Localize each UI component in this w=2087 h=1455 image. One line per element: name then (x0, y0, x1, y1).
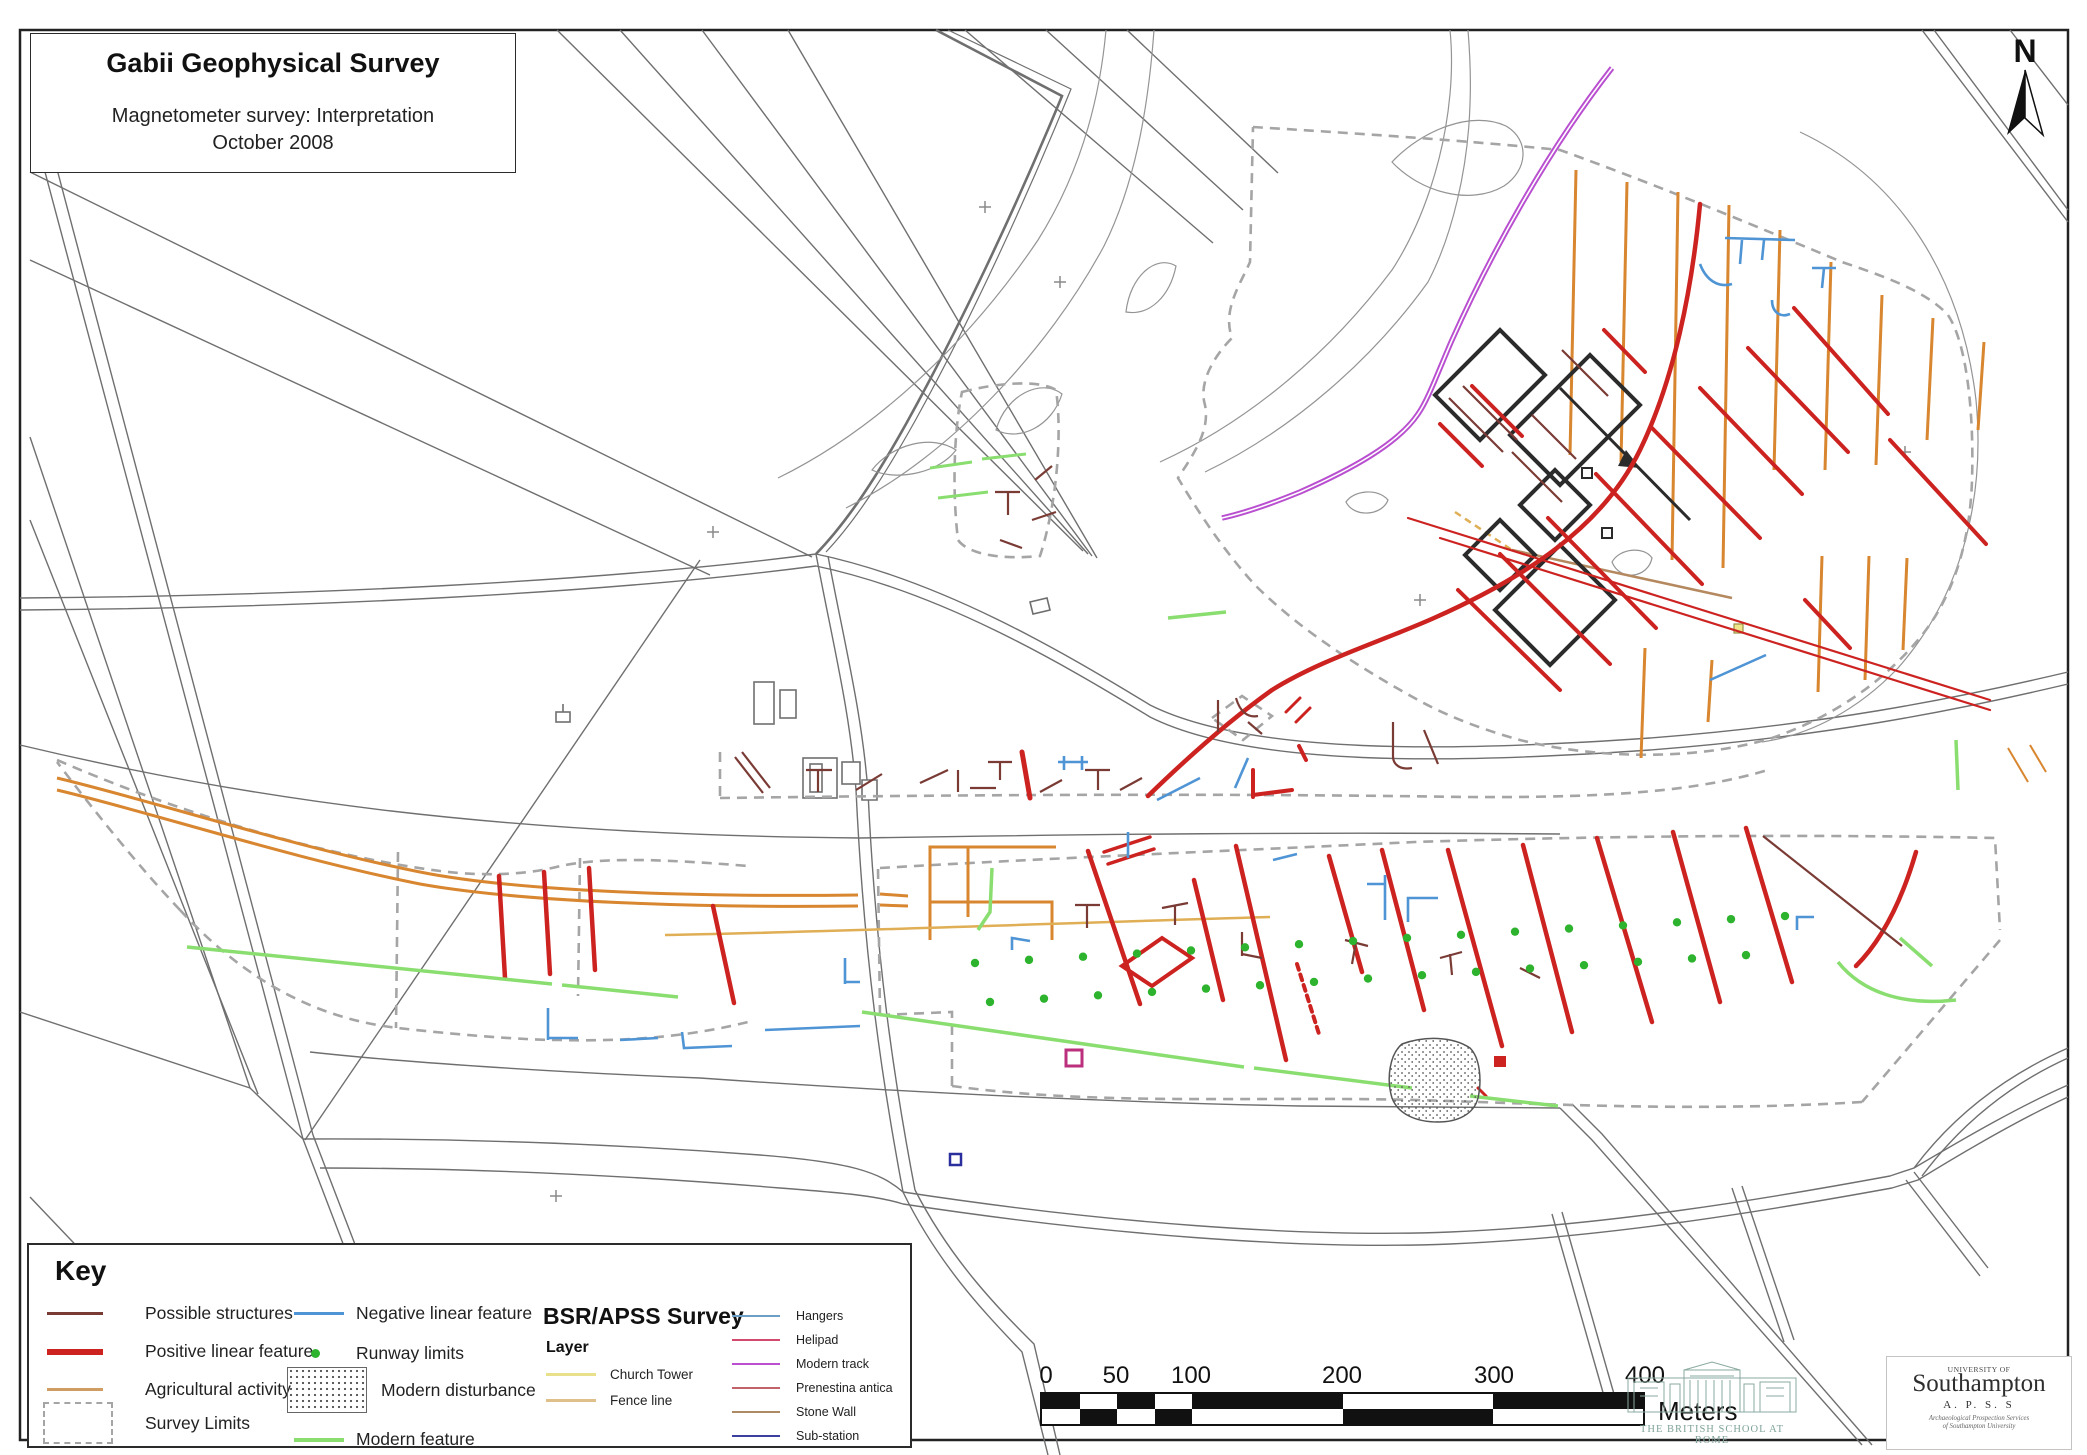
map-subtitle: Magnetometer survey: Interpretation (31, 105, 515, 128)
legend-label: Modern track (796, 1357, 869, 1371)
runway-limit-dot (1349, 937, 1357, 945)
modern-disturbance-patch (1389, 1038, 1480, 1122)
legend-label: Fence line (610, 1393, 672, 1408)
runway-limit-dot (1688, 954, 1696, 962)
runway-limit-dot (1727, 915, 1735, 923)
legend-label: Survey Limits (145, 1413, 250, 1434)
legend-item-possible-structures: Possible structures (47, 1303, 293, 1324)
gabii-survey-map-page: { "title_block": { "title": "Gabii Geoph… (0, 0, 2087, 1455)
apss-subtext: Archaeological Prospection Services of S… (1887, 1415, 2071, 1431)
hangers-swatch (732, 1315, 780, 1317)
runway-limit-dot (1364, 974, 1372, 982)
apss-subtext-line2: of Southampton University (1887, 1423, 2071, 1431)
legend-item-runway-limits: Runway limits (311, 1343, 464, 1364)
runway-limit-dot (1619, 921, 1627, 929)
helipad-swatch (732, 1339, 780, 1341)
scale-tick: 100 (1171, 1362, 1211, 1390)
legend-item-survey-limits: Survey Limits (43, 1402, 250, 1444)
bsr-logo-text: THE BRITISH SCHOOL AT ROME (1622, 1424, 1802, 1446)
legend-label: Negative linear feature (356, 1303, 532, 1324)
legend-label: Helipad (796, 1333, 838, 1347)
runway-limit-dot (1025, 956, 1033, 964)
runway-limit-dot (1079, 953, 1087, 961)
bsr-building-icon (1624, 1360, 1800, 1418)
legend-label: Stone Wall (796, 1405, 856, 1419)
runway-limit-dot (1040, 994, 1048, 1002)
scale-tick: 300 (1474, 1362, 1514, 1390)
runway-limit-dot (971, 959, 979, 967)
legend-label: Agricultural activity (145, 1379, 291, 1400)
runway-limit-dot (1094, 991, 1102, 999)
agricultural-swatch (47, 1388, 103, 1391)
legend-item-modern-feature: Modern feature (294, 1429, 475, 1450)
runway-limit-dot (1403, 934, 1411, 942)
bsr-layer-subheading: Layer (546, 1339, 589, 1357)
stone-wall-swatch (732, 1411, 780, 1413)
bsr-logo: THE BRITISH SCHOOL AT ROME (1622, 1360, 1802, 1444)
legend-item-stone-wall: Stone Wall (732, 1405, 856, 1419)
legend-item-modern-disturbance: Modern disturbance (287, 1367, 536, 1413)
modern-disturbance-swatch (287, 1367, 367, 1413)
legend-item-church-tower: Church Tower (546, 1367, 693, 1382)
legend-heading: Key (55, 1255, 106, 1287)
runway-limit-dot (1526, 964, 1534, 972)
map-frame (20, 30, 2068, 1440)
scale-tick: 50 (1103, 1362, 1130, 1390)
scale-tick: 0 (1039, 1362, 1052, 1390)
legend-label: Possible structures (145, 1303, 293, 1324)
apss-label: A. P. S. S (1887, 1399, 2071, 1411)
legend-item-negative-linear: Negative linear feature (294, 1303, 532, 1324)
runway-limit-dot (1742, 951, 1750, 959)
southampton-wordmark: Southampton (1887, 1374, 2071, 1394)
scale-tick: 200 (1322, 1362, 1362, 1390)
scale-bar-graphic (1040, 1392, 1645, 1426)
modern-track-swatch (732, 1363, 780, 1365)
runway-limit-dot (1256, 981, 1264, 989)
map-date: October 2008 (31, 132, 515, 155)
legend-item-fence-line: Fence line (546, 1393, 672, 1408)
bsr-survey-heading: BSR/APSS Survey (543, 1303, 744, 1330)
runway-limit-dot (1781, 912, 1789, 920)
legend-item-helipad: Helipad (732, 1333, 838, 1347)
survey-limits-swatch (43, 1402, 113, 1444)
legend-item-prenestina-antica: Prenestina antica (732, 1381, 893, 1395)
fence-line-swatch (546, 1399, 596, 1402)
runway-limit-dot (1202, 984, 1210, 992)
modern-feature-swatch (294, 1438, 344, 1442)
runway-limit-dot (1634, 958, 1642, 966)
runway-limit-dot (1187, 946, 1195, 954)
map-title: Gabii Geophysical Survey (31, 48, 515, 79)
legend-item-positive-linear: Positive linear feature (47, 1341, 313, 1362)
legend-label: Positive linear feature (145, 1341, 313, 1362)
positive-feature-swatch (47, 1349, 103, 1355)
survey-map: N (0, 0, 2087, 1455)
runway-limit-dot (1511, 927, 1519, 935)
runway-limit-dot (1418, 971, 1426, 979)
runway-limit-dot (1295, 940, 1303, 948)
runway-limits-swatch (311, 1349, 320, 1358)
runway-limit-dot (1310, 978, 1318, 986)
sub-station-swatch (732, 1435, 780, 1437)
legend-item-modern-track: Modern track (732, 1357, 869, 1371)
legend-label: Church Tower (610, 1367, 693, 1382)
church-tower-swatch (546, 1373, 596, 1376)
legend-item-hangers: Hangers (732, 1309, 843, 1323)
runway-limit-dot (1472, 968, 1480, 976)
runway-limit-dot (1241, 943, 1249, 951)
legend-label: Runway limits (356, 1343, 464, 1364)
negative-feature-swatch (294, 1312, 344, 1315)
legend-label: Hangers (796, 1309, 843, 1323)
runway-limit-dot (1673, 918, 1681, 926)
legend-item-agricultural: Agricultural activity (47, 1379, 291, 1400)
runway-limit-dot (1457, 931, 1465, 939)
sub-station-square (950, 1154, 961, 1165)
legend-label: Modern disturbance (381, 1380, 536, 1401)
legend-label: Prenestina antica (796, 1381, 893, 1395)
legend-item-sub-station: Sub-station (732, 1429, 859, 1443)
north-label: N (2013, 33, 2036, 69)
legend-label: Sub-station (796, 1429, 859, 1443)
southampton-logo: UNIVERSITY OF Southampton A. P. S. S Arc… (1886, 1356, 2072, 1450)
runway-limit-dot (1148, 988, 1156, 996)
legend-label: Modern feature (356, 1429, 475, 1450)
apss-subtext-line1: Archaeological Prospection Services (1887, 1415, 2071, 1423)
runway-limit-dot (1580, 961, 1588, 969)
runway-limit-dot (1133, 949, 1141, 957)
prenestina-antica-swatch (732, 1387, 780, 1389)
runway-limit-dot (986, 998, 994, 1006)
title-box: Gabii Geophysical Survey Magnetometer su… (30, 33, 516, 173)
runway-limit-dot (1565, 924, 1573, 932)
possible-structures-swatch (47, 1312, 103, 1315)
legend-box: Key Possible structures Positive linear … (27, 1243, 912, 1448)
